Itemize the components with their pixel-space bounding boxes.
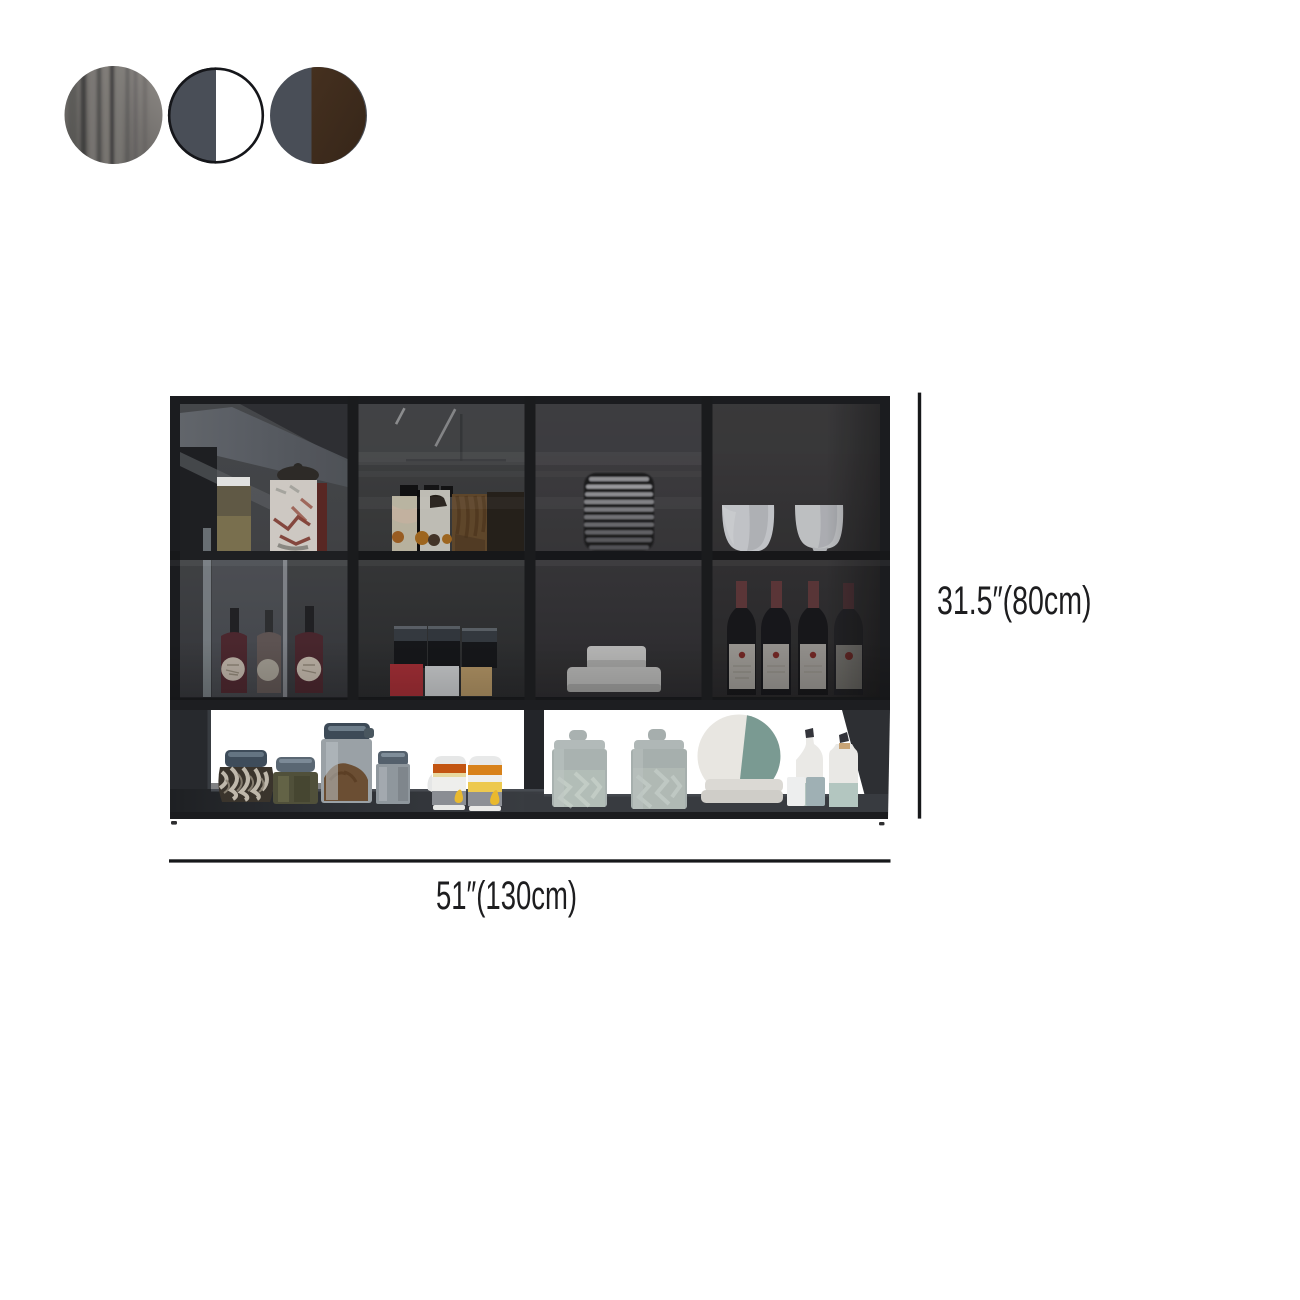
svg-text:31.5″(80cm): 31.5″(80cm): [937, 579, 1092, 623]
svg-text:51″(130cm): 51″(130cm): [436, 874, 577, 918]
